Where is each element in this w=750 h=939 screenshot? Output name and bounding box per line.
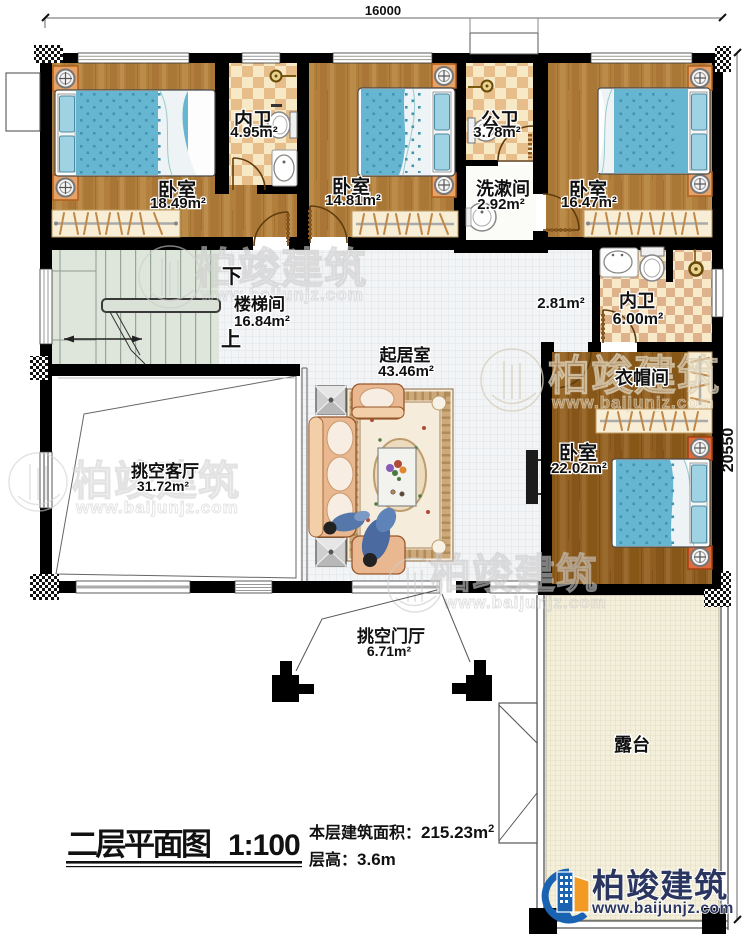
svg-text:16000: 16000 (365, 3, 401, 18)
svg-text:22.02m²: 22.02m² (551, 460, 607, 477)
svg-text:20550: 20550 (720, 428, 737, 473)
svg-text:内卫: 内卫 (619, 290, 655, 311)
svg-text:起居室: 起居室 (379, 345, 431, 365)
svg-text:层高：3.6m: 层高：3.6m (309, 850, 396, 869)
svg-text:3.78m²: 3.78m² (473, 124, 521, 141)
svg-text:18.49m²: 18.49m² (150, 195, 206, 212)
svg-text:www.baijunjz.com: www.baijunjz.com (591, 900, 734, 917)
svg-text:6.00m²: 6.00m² (613, 311, 664, 328)
svg-text:www.baijunjz.com: www.baijunjz.com (75, 498, 239, 517)
svg-text:1:100: 1:100 (228, 829, 300, 862)
svg-text:本层建筑面积：215.23m2: 本层建筑面积：215.23m2 (309, 823, 494, 842)
svg-text:楼梯间: 楼梯间 (234, 294, 285, 314)
svg-text:www.baijunjz.com: www.baijunjz.com (551, 393, 715, 412)
svg-text:露台: 露台 (614, 734, 650, 755)
svg-text:下: 下 (222, 266, 242, 288)
svg-text:6.71m²: 6.71m² (367, 643, 412, 659)
svg-text:4.95m²: 4.95m² (230, 124, 278, 141)
svg-text:衣帽间: 衣帽间 (615, 367, 669, 388)
svg-text:2.92m²: 2.92m² (477, 196, 525, 213)
svg-text:14.81m²: 14.81m² (325, 192, 381, 209)
svg-text:柏竣建筑: 柏竣建筑 (592, 867, 728, 904)
svg-text:43.46m²: 43.46m² (378, 363, 434, 380)
svg-text:16.47m²: 16.47m² (561, 194, 617, 211)
svg-text:www.baijunjz.com: www.baijunjz.com (443, 593, 607, 612)
svg-text:柏竣建筑: 柏竣建筑 (430, 551, 598, 597)
svg-text:2.81m²: 2.81m² (537, 295, 585, 312)
svg-text:二层平面图: 二层平面图 (67, 827, 210, 862)
svg-text:16.84m²: 16.84m² (234, 313, 290, 330)
svg-text:31.72m²: 31.72m² (137, 478, 189, 494)
svg-text:上: 上 (221, 328, 241, 351)
